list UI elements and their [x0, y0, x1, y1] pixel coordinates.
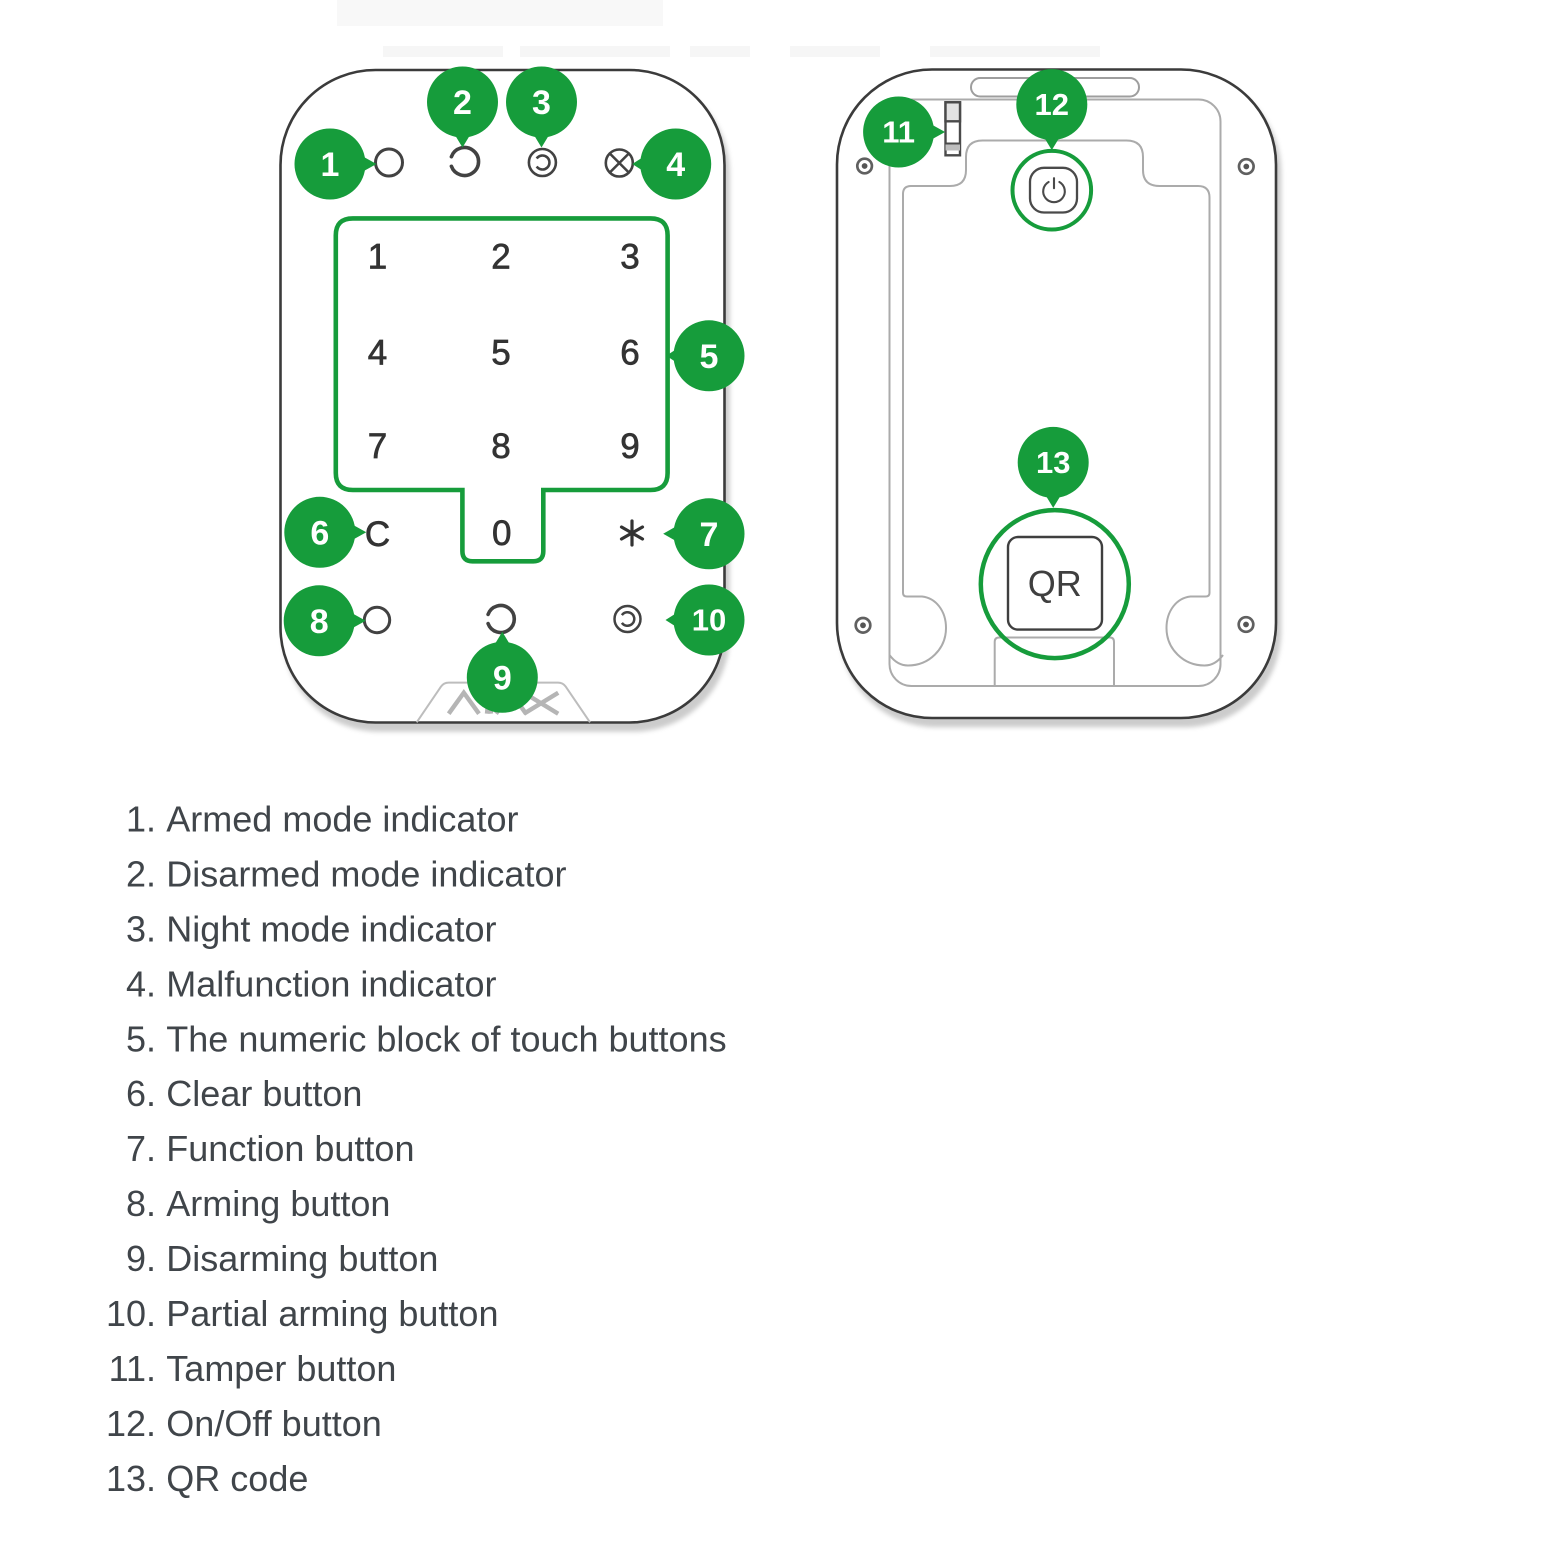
svg-text:8: 8	[310, 603, 329, 641]
svg-text:Disarming button: Disarming button	[166, 1238, 438, 1279]
svg-text:5: 5	[491, 334, 510, 373]
svg-text:2: 2	[491, 238, 510, 277]
svg-text:12: 12	[1035, 87, 1069, 122]
svg-text:QR: QR	[1028, 563, 1082, 604]
svg-text:3: 3	[532, 84, 551, 122]
svg-text:On/Off button: On/Off button	[166, 1403, 381, 1444]
svg-text:11: 11	[882, 115, 915, 150]
svg-text:13: 13	[1036, 445, 1070, 480]
svg-text:9: 9	[493, 659, 512, 697]
svg-text:6: 6	[310, 514, 329, 552]
svg-text:0: 0	[492, 514, 511, 553]
svg-text:Night mode indicator: Night mode indicator	[166, 908, 496, 949]
svg-text:11.: 11.	[109, 1348, 156, 1389]
svg-text:1: 1	[321, 146, 340, 184]
svg-text:12.: 12.	[106, 1403, 156, 1444]
svg-text:5: 5	[700, 338, 719, 376]
svg-text:6.: 6.	[126, 1073, 156, 1114]
svg-text:13.: 13.	[106, 1458, 156, 1499]
svg-text:3.: 3.	[126, 908, 156, 949]
svg-text:8.: 8.	[126, 1183, 156, 1224]
svg-text:Function button: Function button	[166, 1128, 414, 1169]
svg-text:6: 6	[620, 334, 639, 373]
svg-text:7: 7	[368, 427, 387, 466]
svg-text:7.: 7.	[126, 1128, 156, 1169]
svg-text:Disarmed mode indicator: Disarmed mode indicator	[166, 854, 566, 895]
svg-text:2: 2	[453, 84, 472, 122]
svg-text:4: 4	[368, 334, 387, 373]
svg-text:10: 10	[692, 603, 726, 638]
svg-text:9: 9	[620, 427, 639, 466]
svg-text:Arming button: Arming button	[166, 1183, 390, 1224]
svg-text:The numeric block of touch but: The numeric block of touch buttons	[166, 1018, 726, 1059]
svg-text:1: 1	[368, 238, 387, 277]
svg-text:2.: 2.	[126, 854, 156, 895]
svg-text:8: 8	[491, 427, 510, 466]
svg-text:Armed mode indicator: Armed mode indicator	[166, 799, 518, 840]
svg-text:5.: 5.	[126, 1018, 156, 1059]
svg-text:7: 7	[700, 516, 719, 554]
svg-text:3: 3	[620, 238, 639, 277]
svg-text:4: 4	[666, 146, 685, 184]
svg-text:C: C	[365, 515, 390, 554]
svg-text:4.: 4.	[126, 963, 156, 1004]
svg-text:1.: 1.	[126, 799, 156, 840]
svg-text:Clear button: Clear button	[166, 1073, 362, 1114]
svg-text:Tamper button: Tamper button	[166, 1348, 396, 1389]
svg-text:QR code: QR code	[166, 1458, 308, 1499]
svg-text:Malfunction indicator: Malfunction indicator	[166, 963, 496, 1004]
svg-text:9.: 9.	[126, 1238, 156, 1279]
svg-text:Partial arming button: Partial arming button	[166, 1293, 498, 1334]
svg-text:10.: 10.	[106, 1293, 156, 1334]
